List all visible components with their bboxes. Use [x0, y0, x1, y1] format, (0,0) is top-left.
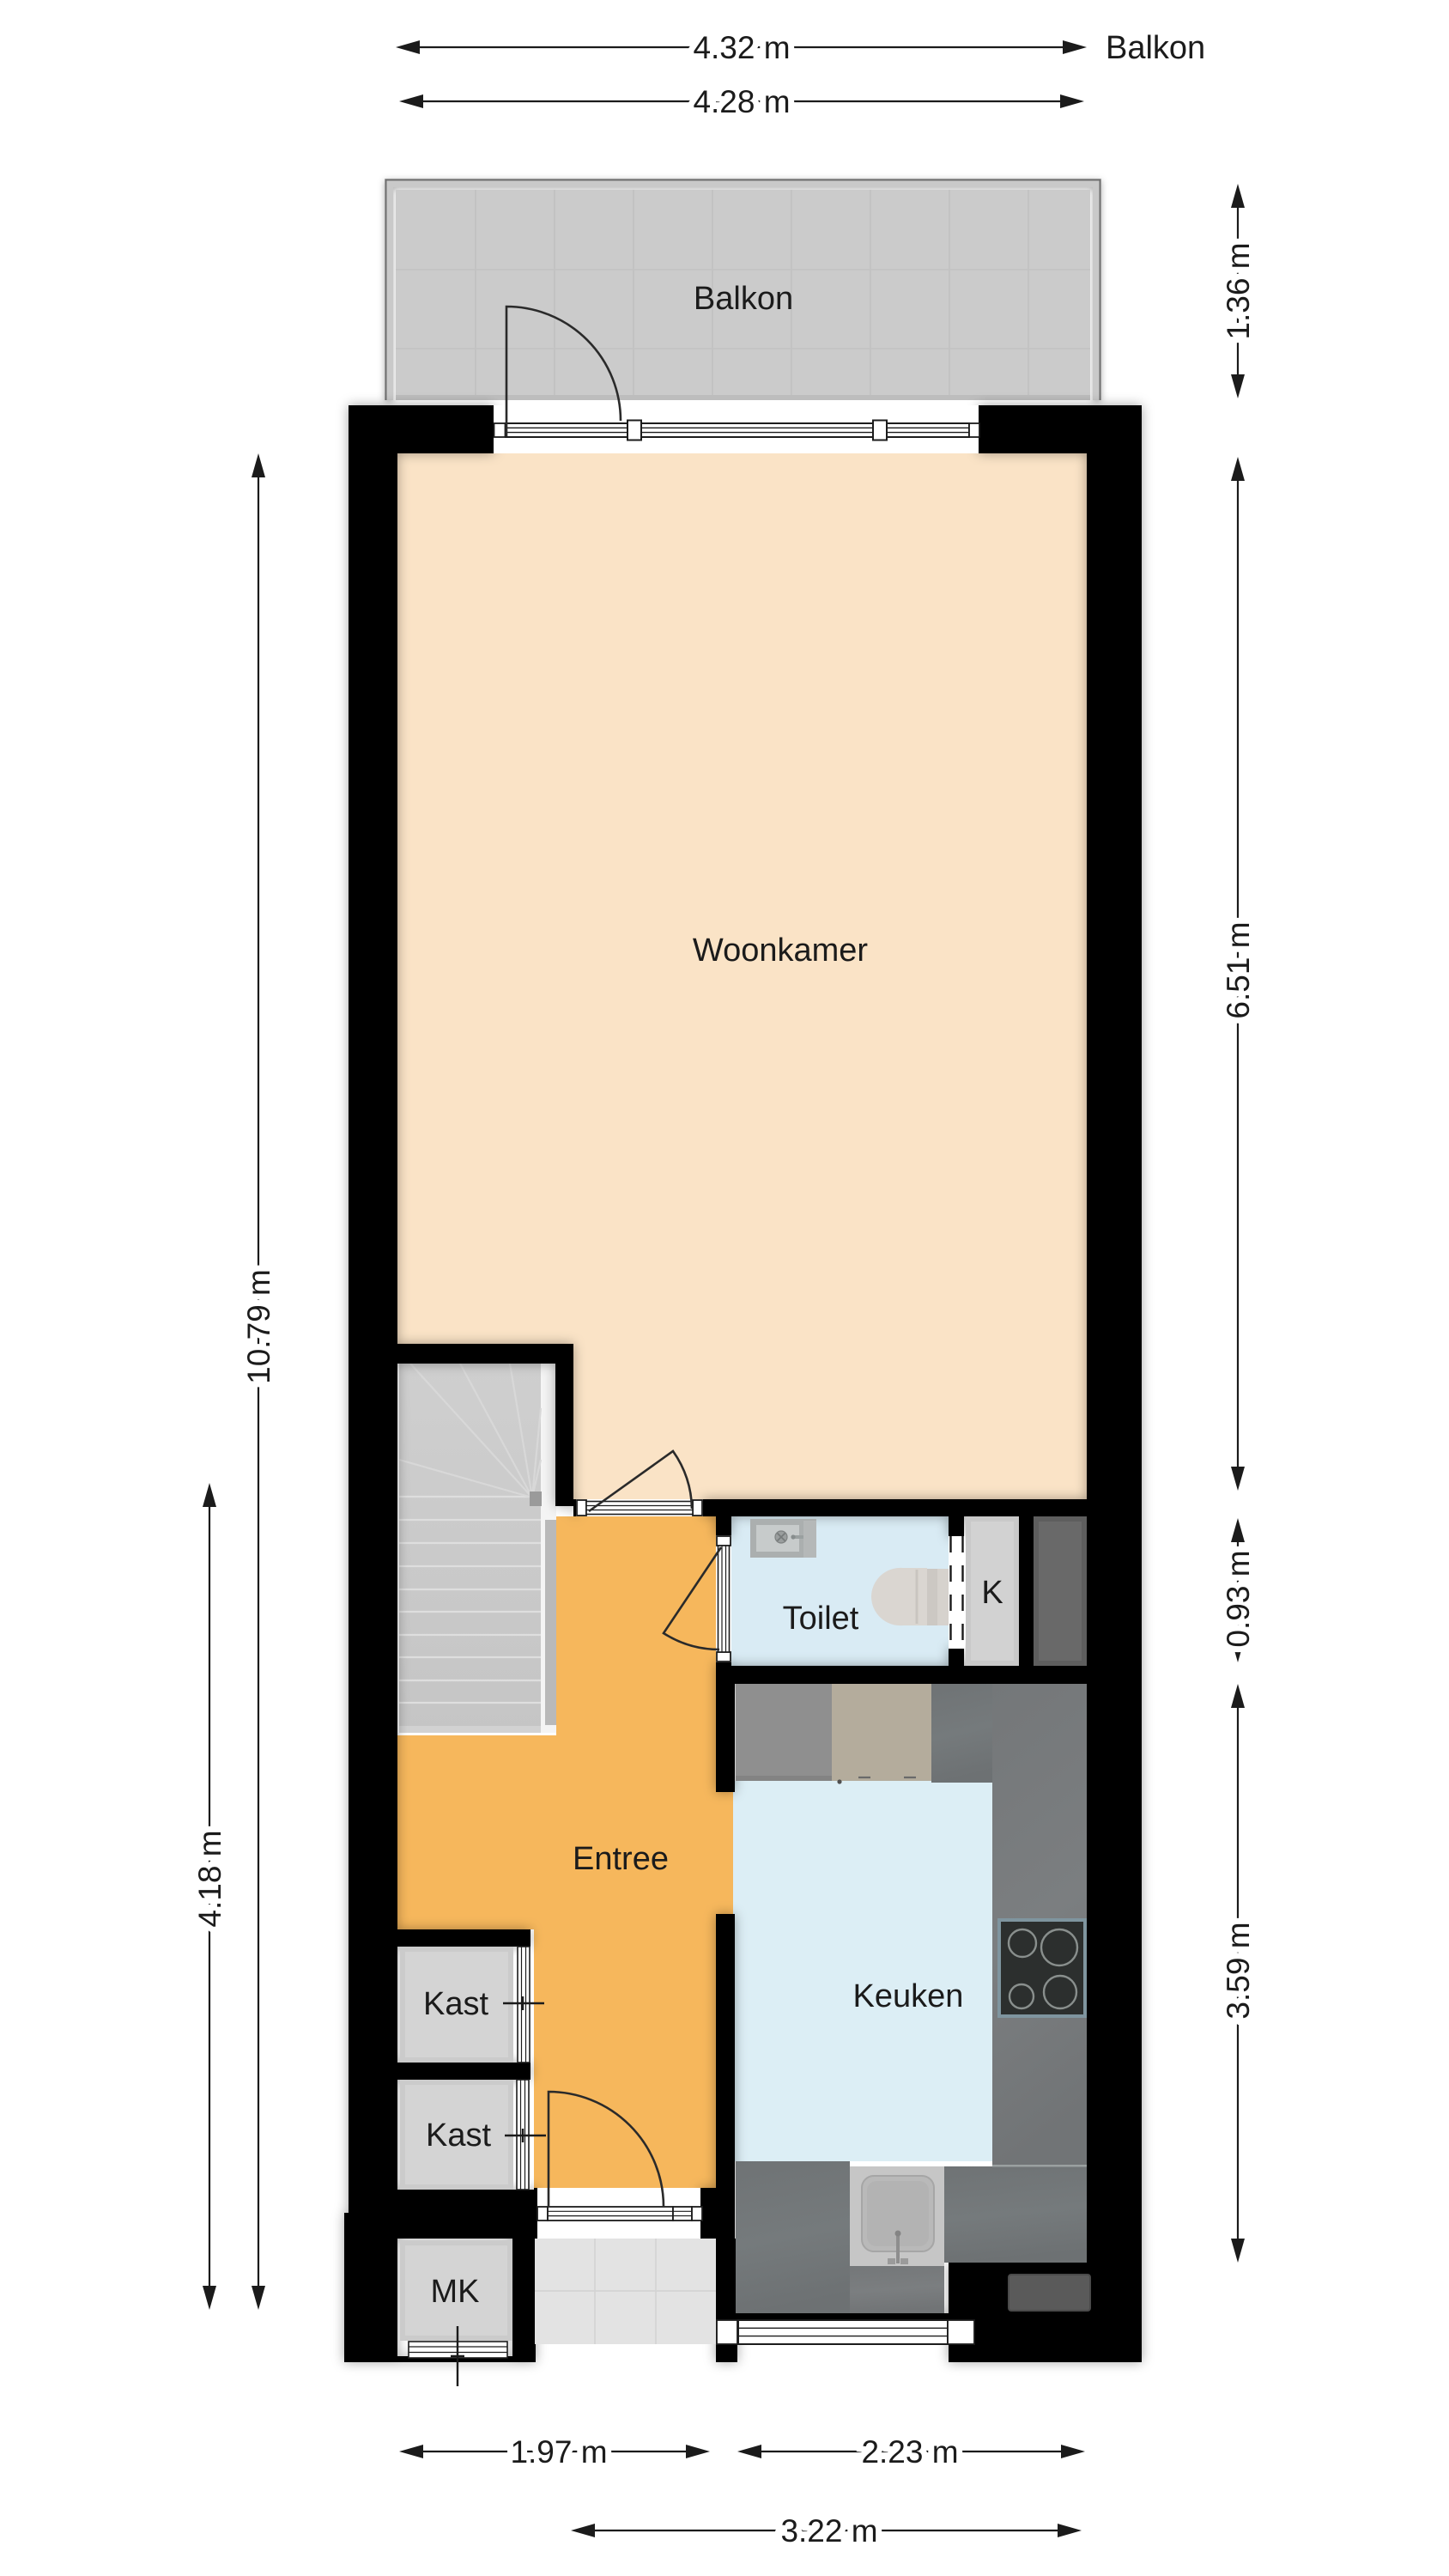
svg-text:1.36 m: 1.36 m	[1221, 242, 1256, 339]
svg-text:MK: MK	[431, 2274, 480, 2310]
svg-text:Kast: Kast	[426, 2117, 491, 2154]
svg-text:Balkon: Balkon	[694, 281, 793, 317]
svg-text:4.32 m: 4.32 m	[693, 30, 790, 65]
svg-text:10.79 m: 10.79 m	[241, 1269, 276, 1384]
svg-text:1.97 m: 1.97 m	[510, 2434, 607, 2470]
svg-text:Toilet: Toilet	[783, 1601, 859, 1637]
svg-text:4.18 m: 4.18 m	[192, 1830, 227, 1927]
svg-text:3.59 m: 3.59 m	[1221, 1922, 1256, 2019]
svg-text:Entree: Entree	[573, 1841, 669, 1877]
svg-text:0.93 m: 0.93 m	[1221, 1550, 1256, 1647]
svg-text:Balkon: Balkon	[1106, 30, 1205, 66]
svg-text:6.51 m: 6.51 m	[1221, 921, 1256, 1018]
svg-text:Kast: Kast	[423, 1986, 488, 2022]
svg-text:4.28 m: 4.28 m	[693, 84, 790, 119]
svg-text:Keuken: Keuken	[853, 1978, 964, 2014]
svg-text:3.22 m: 3.22 m	[780, 2513, 877, 2549]
svg-text:Woonkamer: Woonkamer	[693, 933, 869, 969]
svg-text:K: K	[981, 1575, 1003, 1611]
svg-text:2.23 m: 2.23 m	[861, 2434, 958, 2470]
